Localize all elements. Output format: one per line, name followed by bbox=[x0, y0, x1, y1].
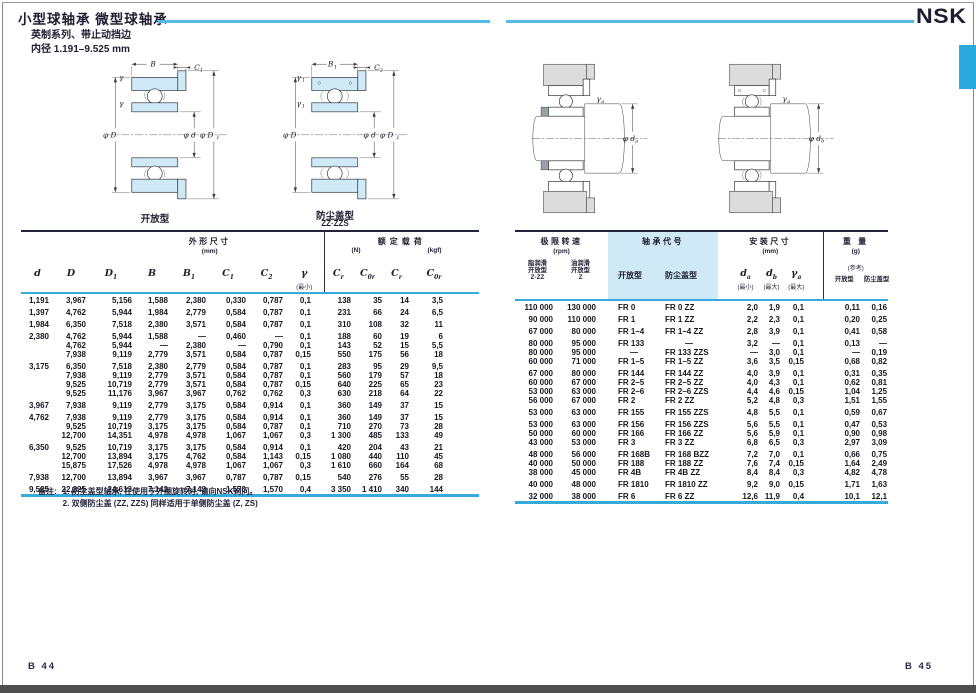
table-cell: 4,762 bbox=[170, 452, 208, 461]
table-cell: 2,3 bbox=[760, 312, 783, 324]
table-cell: 283 bbox=[324, 359, 352, 371]
table-cell: FR 168B bbox=[608, 447, 662, 459]
table-cell: FR 6 bbox=[608, 489, 662, 503]
table-cell: 4,3 bbox=[760, 378, 783, 387]
table-cell: 0,1 bbox=[783, 300, 823, 312]
table-cell: 485 bbox=[352, 431, 383, 440]
gamma1-sub-mid: 1 bbox=[302, 104, 305, 110]
table-row: 67 00080 000FR 144FR 144 ZZ4,03,90,10,31… bbox=[515, 366, 888, 378]
table-cell: 110 000 bbox=[553, 312, 608, 324]
section-tab bbox=[959, 45, 976, 89]
table-cell: 80 000 bbox=[515, 336, 553, 348]
table-cell: 0,53 bbox=[862, 417, 888, 429]
col-d: d bbox=[21, 258, 54, 293]
table-cell: 0,584 bbox=[208, 452, 248, 461]
table-cell: 1,397 bbox=[21, 305, 54, 317]
unit-n: (N) bbox=[352, 247, 361, 254]
table-cell: 63 000 bbox=[553, 417, 608, 429]
table-cell: 52 bbox=[352, 341, 383, 350]
speed-code-mounting-table: 极限转速 (rpm) 轴承代号 安装尺寸 (mm) 重 量 (g) 脂润滑 开放… bbox=[515, 230, 888, 504]
table-row: 38 00045 000FR 4BFR 4B ZZ8,48,40,34,824,… bbox=[515, 468, 888, 477]
table-cell: 6,350 bbox=[54, 317, 88, 329]
table-cell: 17,526 bbox=[88, 461, 134, 470]
code-group-header: 轴承代号 bbox=[608, 231, 718, 258]
table-cell: 0,67 bbox=[862, 405, 888, 417]
table-cell: 149 bbox=[352, 410, 383, 422]
table-cell: 0,13 bbox=[823, 336, 862, 348]
table-row: 7,9389,1192,7793,5710,5840,7870,15550175… bbox=[21, 350, 479, 359]
table-cell: 0,15 bbox=[285, 380, 324, 389]
table-cell: 108 bbox=[352, 317, 383, 329]
table-row: 1,3974,7625,9441,9842,7790,5840,7870,123… bbox=[21, 305, 479, 317]
unit-kgf: (kgf) bbox=[428, 247, 442, 254]
table-cell: FR 1 ZZ bbox=[662, 312, 718, 324]
table-cell: 4,978 bbox=[170, 431, 208, 440]
table-cell: 225 bbox=[352, 380, 383, 389]
dimensions-load-table: 外形尺寸 (mm) 额定载荷 (N) (kgf) d D D1 B B1 C1 … bbox=[21, 230, 479, 497]
table-cell: 2,779 bbox=[134, 398, 170, 410]
table-cell: 0,1 bbox=[285, 422, 324, 431]
table-cell: 2,779 bbox=[134, 350, 170, 359]
table-cell: 53 000 bbox=[515, 387, 553, 396]
accent-rule-left bbox=[158, 20, 490, 23]
table-cell: 0,81 bbox=[862, 378, 888, 387]
table-cell: 0,15 bbox=[783, 459, 823, 468]
table-cell: 1,143 bbox=[248, 452, 285, 461]
table-cell: 3,967 bbox=[134, 389, 170, 398]
table-cell: 0,790 bbox=[248, 341, 285, 350]
table-cell: 0,787 bbox=[248, 470, 285, 482]
table-cell: 0,1 bbox=[783, 348, 823, 357]
table-cell: 66 bbox=[352, 305, 383, 317]
table-row: 32 00038 000FR 6FR 6 ZZ12,611,90,410,112… bbox=[515, 489, 888, 503]
table-row: 4,7625,944—2,380—0,7900,114352155,5 bbox=[21, 341, 479, 350]
table-cell: 4,78 bbox=[862, 468, 888, 477]
table-cell: 65 bbox=[383, 380, 410, 389]
table-row: 60 00071 000FR 1–5FR 1–5 ZZ3,63,50,150,6… bbox=[515, 357, 888, 366]
table-cell: 3,175 bbox=[21, 359, 54, 371]
col-da: da (最小) bbox=[718, 258, 760, 300]
table-cell: 7,938 bbox=[54, 371, 88, 380]
table-cell: 43 bbox=[383, 440, 410, 452]
col-weight-shield: 防尘盖型 bbox=[864, 274, 887, 283]
table-cell: 0,787 bbox=[248, 350, 285, 359]
table-cell: 40 000 bbox=[515, 477, 553, 489]
col-D1: D1 bbox=[88, 258, 134, 293]
table-cell: 2,779 bbox=[134, 410, 170, 422]
table-cell: 32 000 bbox=[515, 489, 553, 503]
table-cell: 14 bbox=[383, 293, 410, 305]
table-cell: 0,1 bbox=[285, 317, 324, 329]
table-cell: 40 000 bbox=[515, 459, 553, 468]
table-cell: 0,1 bbox=[783, 366, 823, 378]
table-cell: 2,779 bbox=[134, 371, 170, 380]
table-row: 90 000110 000FR 1FR 1 ZZ2,22,30,10,200,2… bbox=[515, 312, 888, 324]
table-row: 1,1913,9675,1561,5882,3800,3300,7870,113… bbox=[21, 293, 479, 305]
table-cell: 276 bbox=[352, 470, 383, 482]
table-cell: 4,762 bbox=[54, 305, 88, 317]
table-cell: 0,3 bbox=[285, 389, 324, 398]
table-cell: 7,938 bbox=[54, 410, 88, 422]
table-cell: 0,19 bbox=[862, 348, 888, 357]
table-cell: 175 bbox=[352, 350, 383, 359]
table-cell: 12,6 bbox=[718, 489, 760, 503]
table-cell: — bbox=[718, 348, 760, 357]
table-cell: FR 1–4 bbox=[608, 324, 662, 336]
dim-label-phid: φ d bbox=[363, 130, 376, 139]
table-cell: 3,0 bbox=[760, 348, 783, 357]
table-cell: 0,25 bbox=[862, 312, 888, 324]
table-cell: 2,2 bbox=[718, 312, 760, 324]
footnotes: 备注: 1. 防尘盖型轴承, 在使用于外圈旋转时, 请向NSK询问。 2. 双侧… bbox=[38, 486, 468, 510]
gamma1-label-mid: γ bbox=[297, 99, 302, 108]
table-cell: 0,584 bbox=[208, 380, 248, 389]
table-cell: 630 bbox=[324, 389, 352, 398]
table-cell: FR 2 ZZ bbox=[662, 396, 718, 405]
table-cell: 56 bbox=[383, 350, 410, 359]
dim-label-phiD1: φ D bbox=[200, 130, 214, 139]
table-cell: 1,588 bbox=[134, 293, 170, 305]
table-cell: 9,0 bbox=[760, 477, 783, 489]
table-cell: 63 000 bbox=[553, 387, 608, 396]
table-row: 4,7627,9389,1192,7793,1750,5840,9140,136… bbox=[21, 410, 479, 422]
table-cell: 95 bbox=[352, 359, 383, 371]
table-cell: FR 168 BZZ bbox=[662, 447, 718, 459]
table-cell: 38 000 bbox=[553, 489, 608, 503]
table-row: 9,52510,7192,7793,5710,5840,7870,1564022… bbox=[21, 380, 479, 389]
table-cell: 3,175 bbox=[134, 452, 170, 461]
table-cell: 5,5 bbox=[410, 341, 479, 350]
table-cell: 6 bbox=[410, 329, 479, 341]
table-row: 1,9846,3507,5182,3803,5710,5840,7870,131… bbox=[21, 317, 479, 329]
table-cell: 3,175 bbox=[170, 440, 208, 452]
table-cell: 3,175 bbox=[170, 398, 208, 410]
table-cell: 3,175 bbox=[170, 410, 208, 422]
table-cell: 0,15 bbox=[285, 350, 324, 359]
table-cell: 4,762 bbox=[21, 410, 54, 422]
table-cell bbox=[21, 371, 54, 380]
col-weights: (参考) 开放型 防尘盖型 bbox=[823, 258, 888, 300]
table-row: 12,70014,3514,9784,9781,0671,0670,31 300… bbox=[21, 431, 479, 440]
open-caption: 开放型 bbox=[115, 211, 195, 225]
col-B: B bbox=[134, 258, 170, 293]
table-cell: 0,66 bbox=[823, 447, 862, 459]
table-cell: 0,584 bbox=[208, 359, 248, 371]
table-cell: 1,71 bbox=[823, 477, 862, 489]
table-cell: FR 156 ZZS bbox=[662, 417, 718, 429]
table-cell: 3,9 bbox=[760, 324, 783, 336]
table-cell: 0,47 bbox=[823, 417, 862, 429]
table-cell: 4,8 bbox=[760, 396, 783, 405]
table-cell: 80 000 bbox=[553, 324, 608, 336]
table-cell: 1,067 bbox=[208, 461, 248, 470]
table-cell: 67 000 bbox=[515, 366, 553, 378]
table-cell: 0,762 bbox=[248, 389, 285, 398]
table-cell: FR 2–6 bbox=[608, 387, 662, 396]
table-cell: 0,787 bbox=[208, 470, 248, 482]
table-cell: 1,984 bbox=[21, 317, 54, 329]
table-cell: 11,9 bbox=[760, 489, 783, 503]
table-cell: 18 bbox=[410, 371, 479, 380]
dim-label-B1: B bbox=[327, 60, 334, 69]
table-cell: 80 000 bbox=[515, 348, 553, 357]
table-cell: 6,5 bbox=[410, 305, 479, 317]
table-cell: 64 bbox=[383, 389, 410, 398]
table-cell: 7,938 bbox=[54, 350, 88, 359]
page-title: 小型球轴承 微型球轴承 bbox=[18, 8, 168, 28]
table-row: 67 00080 000FR 1–4FR 1–4 ZZ2,83,90,10,41… bbox=[515, 324, 888, 336]
table-row: 53 00063 000FR 155FR 155 ZZS4,85,50,10,5… bbox=[515, 405, 888, 417]
table-cell: 640 bbox=[324, 380, 352, 389]
table-cell: 43 000 bbox=[515, 438, 553, 447]
table-cell: 13,894 bbox=[88, 470, 134, 482]
col-grease-speed: 脂润滑 开放型 Z·ZZ bbox=[515, 258, 553, 300]
table-cell: 67 000 bbox=[515, 324, 553, 336]
table-cell: 37 bbox=[383, 410, 410, 422]
table-cell: 53 000 bbox=[553, 438, 608, 447]
table-cell: 0,787 bbox=[248, 359, 285, 371]
table-cell: 204 bbox=[352, 440, 383, 452]
table-cell: 360 bbox=[324, 398, 352, 410]
col-D: D bbox=[54, 258, 88, 293]
dim-label-phid: φ d bbox=[183, 130, 196, 139]
table-cell: — bbox=[760, 336, 783, 348]
table-cell: 2,380 bbox=[170, 293, 208, 305]
table-cell: 60 000 bbox=[553, 429, 608, 438]
table-row: 53 00063 000FR 156FR 156 ZZS5,65,50,10,4… bbox=[515, 417, 888, 429]
table-cell: FR 155 ZZS bbox=[662, 405, 718, 417]
table-cell: 2,380 bbox=[21, 329, 54, 341]
table-cell: FR 3 bbox=[608, 438, 662, 447]
table-cell: 0,16 bbox=[862, 300, 888, 312]
table-cell: 80 000 bbox=[553, 366, 608, 378]
table-cell: FR 144 bbox=[608, 366, 662, 378]
table-cell: 0,3 bbox=[783, 396, 823, 405]
table-cell: 22 bbox=[410, 389, 479, 398]
table-cell: 0,1 bbox=[783, 429, 823, 438]
col-gamma: γ (最小) bbox=[285, 258, 324, 293]
table-cell: 50 000 bbox=[515, 429, 553, 438]
table-cell: 9,525 bbox=[54, 389, 88, 398]
table-cell: 5,156 bbox=[88, 293, 134, 305]
table-cell: 2,380 bbox=[134, 317, 170, 329]
table-cell: 3,175 bbox=[134, 440, 170, 452]
col-C2: C2 bbox=[248, 258, 285, 293]
table-cell: 3,6 bbox=[718, 357, 760, 366]
table-cell: 57 bbox=[383, 371, 410, 380]
table-cell: 0,1 bbox=[783, 447, 823, 459]
table-cell: 164 bbox=[383, 461, 410, 470]
table-cell: FR 133 ZZS bbox=[662, 348, 718, 357]
table-cell: 540 bbox=[324, 470, 352, 482]
table-cell: 14,351 bbox=[88, 431, 134, 440]
table-cell: 0,584 bbox=[208, 440, 248, 452]
table-cell: 4,0 bbox=[718, 366, 760, 378]
table-cell: 710 bbox=[324, 422, 352, 431]
table-cell: 1,067 bbox=[208, 431, 248, 440]
accent-rule-right bbox=[506, 20, 914, 23]
series-subtitle: 英制系列、带止动挡边 bbox=[31, 26, 131, 41]
table-cell: 0,1 bbox=[285, 410, 324, 422]
table-cell: 0,82 bbox=[862, 357, 888, 366]
table-cell: FR 1–5 ZZ bbox=[662, 357, 718, 366]
table-cell: 7,938 bbox=[54, 398, 88, 410]
table-cell: 0,4 bbox=[783, 489, 823, 503]
table-cell: 9,119 bbox=[88, 398, 134, 410]
table-row: 2,3804,7625,9441,588—0,460—0,118860196 bbox=[21, 329, 479, 341]
table-cell: 1 080 bbox=[324, 452, 352, 461]
bore-range: 内径 1.191–9.525 mm bbox=[31, 40, 130, 55]
table-cell: 3,09 bbox=[862, 438, 888, 447]
table-cell: 8,4 bbox=[718, 468, 760, 477]
table-cell: 48 000 bbox=[515, 447, 553, 459]
table-cell: 9,2 bbox=[718, 477, 760, 489]
table-cell: 0,3 bbox=[285, 461, 324, 470]
table-cell: 9,525 bbox=[54, 380, 88, 389]
table-cell: 4,8 bbox=[718, 405, 760, 417]
table-cell: 0,90 bbox=[823, 429, 862, 438]
table-cell: 9,5 bbox=[410, 359, 479, 371]
table-cell: 0,11 bbox=[823, 300, 862, 312]
table-cell: 1,588 bbox=[134, 329, 170, 341]
table-row: 15,87517,5264,9784,9781,0671,0670,31 610… bbox=[21, 461, 479, 470]
table-cell bbox=[21, 350, 54, 359]
table-cell: 0,787 bbox=[248, 371, 285, 380]
table-row: 80 00095 000—FR 133 ZZS—3,00,1—0,19 bbox=[515, 348, 888, 357]
table-cell: FR 4B ZZ bbox=[662, 468, 718, 477]
table-cell: 1,51 bbox=[823, 396, 862, 405]
table-cell: 179 bbox=[352, 371, 383, 380]
table-cell: 138 bbox=[324, 293, 352, 305]
table-cell: 10,719 bbox=[88, 440, 134, 452]
table-cell: 0,1 bbox=[783, 405, 823, 417]
table-cell: FR 4B bbox=[608, 468, 662, 477]
table-cell: FR 2 bbox=[608, 396, 662, 405]
mounting-shielded-diagram: γ a φ d b bbox=[718, 56, 850, 221]
table-row: 48 00056 000FR 168BFR 168 BZZ7,27,00,10,… bbox=[515, 447, 888, 459]
table-cell: 0,762 bbox=[208, 389, 248, 398]
dim-label-B1-sub: 1 bbox=[334, 64, 337, 70]
table-cell: 0,15 bbox=[783, 387, 823, 396]
table-cell bbox=[21, 431, 54, 440]
footnote-1: 1. 防尘盖型轴承, 在使用于外圈旋转时, 请向NSK询问。 bbox=[63, 486, 258, 497]
table-cell: 310 bbox=[324, 317, 352, 329]
table-cell: 0,31 bbox=[823, 366, 862, 378]
load-group-header: 额定载荷 (N) (kgf) bbox=[324, 231, 479, 258]
table-cell: 2,380 bbox=[170, 341, 208, 350]
mounting-group-header: 安装尺寸 (mm) bbox=[718, 231, 823, 258]
table-cell: 3,175 bbox=[134, 422, 170, 431]
table-cell: 2,779 bbox=[170, 359, 208, 371]
table-cell: 5,5 bbox=[760, 405, 783, 417]
table-cell: 188 bbox=[324, 329, 352, 341]
table-cell: — bbox=[823, 348, 862, 357]
table-cell bbox=[21, 380, 54, 389]
shielded-bearing-diagram: B 1 C 2 γ 1 γ 1 φ D φ d φ D 1 bbox=[282, 56, 422, 212]
table-cell: 0,584 bbox=[208, 371, 248, 380]
table-cell: 53 000 bbox=[515, 405, 553, 417]
table-cell: 68 bbox=[410, 461, 479, 470]
table-row: 40 00048 000FR 1810FR 1810 ZZ9,29,00,151… bbox=[515, 477, 888, 489]
table-cell: 4,4 bbox=[718, 387, 760, 396]
table-cell: 9,119 bbox=[88, 410, 134, 422]
table-row: 40 00050 000FR 188FR 188 ZZ7,67,40,151,6… bbox=[515, 459, 888, 468]
table-cell: 95 000 bbox=[553, 348, 608, 357]
table-cell: 0,58 bbox=[862, 324, 888, 336]
table-cell: FR 166 ZZ bbox=[662, 429, 718, 438]
table-cell: 2,0 bbox=[718, 300, 760, 312]
table-cell: 35 bbox=[352, 293, 383, 305]
gamma-label-mid: γ bbox=[119, 99, 124, 108]
table-cell: 12,700 bbox=[54, 452, 88, 461]
footnote-2: 2. 双侧防尘盖 (ZZ, ZZS) 同样适用于单侧防尘盖 (Z, ZS) bbox=[63, 498, 258, 509]
dim-label-B: B bbox=[149, 60, 156, 69]
table-cell: 110 bbox=[383, 452, 410, 461]
table-cell: 149 bbox=[352, 398, 383, 410]
table-cell: 15,875 bbox=[54, 461, 88, 470]
table-row: 3,1756,3507,5182,3802,7790,5840,7870,128… bbox=[21, 359, 479, 371]
table-cell: 0,914 bbox=[248, 410, 285, 422]
table-cell: 0,1 bbox=[783, 312, 823, 324]
table-cell: FR 2–5 ZZ bbox=[662, 378, 718, 387]
table-cell: 0,15 bbox=[285, 470, 324, 482]
table-cell: 1,984 bbox=[134, 305, 170, 317]
table-cell: 11 bbox=[410, 317, 479, 329]
table-cell: 0,1 bbox=[285, 440, 324, 452]
table-cell: 0,75 bbox=[862, 447, 888, 459]
dims-group-header: 外形尺寸 (mm) bbox=[21, 231, 324, 258]
table-cell: 0,1 bbox=[285, 341, 324, 350]
table-cell: 0,584 bbox=[208, 422, 248, 431]
table-cell: — bbox=[608, 348, 662, 357]
table-cell: 3,9 bbox=[760, 366, 783, 378]
table-cell: 60 bbox=[352, 329, 383, 341]
table-cell: 4,82 bbox=[823, 468, 862, 477]
table-cell: FR 6 ZZ bbox=[662, 489, 718, 503]
table-cell: 2,97 bbox=[823, 438, 862, 447]
table-row: 7,9389,1192,7793,5710,5840,7870,15601795… bbox=[21, 371, 479, 380]
table-cell: 12,700 bbox=[54, 470, 88, 482]
col-gamma-a: γa (最大) bbox=[783, 258, 823, 300]
col-open-code: 开放型 bbox=[608, 258, 662, 300]
table-cell: 3,5 bbox=[410, 293, 479, 305]
table-cell: 0,914 bbox=[248, 398, 285, 410]
table-cell: 3,967 bbox=[54, 293, 88, 305]
table-cell: — bbox=[248, 329, 285, 341]
table-cell: 0,41 bbox=[823, 324, 862, 336]
table-cell: 3,571 bbox=[170, 380, 208, 389]
col-weight-open: 开放型 bbox=[825, 274, 865, 283]
table-cell: 12,1 bbox=[862, 489, 888, 503]
table-cell bbox=[21, 461, 54, 470]
table-cell: 71 000 bbox=[553, 357, 608, 366]
table-cell: 0,1 bbox=[285, 359, 324, 371]
table-cell: 7,6 bbox=[718, 459, 760, 468]
table-cell: 7,518 bbox=[88, 317, 134, 329]
table-cell: 440 bbox=[352, 452, 383, 461]
table-row: 80 00095 000FR 133—3,2—0,10,13— bbox=[515, 336, 888, 348]
table-cell: — bbox=[862, 336, 888, 348]
table-cell: 2,49 bbox=[862, 459, 888, 468]
gamma-a-sub: a bbox=[601, 99, 604, 105]
table-cell: FR 0 ZZ bbox=[662, 300, 718, 312]
table-cell: 10,719 bbox=[88, 380, 134, 389]
table-cell: 1 610 bbox=[324, 461, 352, 470]
table-row: 7,93812,70013,8943,9673,9670,7870,7870,1… bbox=[21, 470, 479, 482]
bottom-bar bbox=[0, 685, 976, 693]
table-cell: FR 166 bbox=[608, 429, 662, 438]
table-row: 56 00067 000FR 2FR 2 ZZ5,24,80,31,511,55 bbox=[515, 396, 888, 405]
